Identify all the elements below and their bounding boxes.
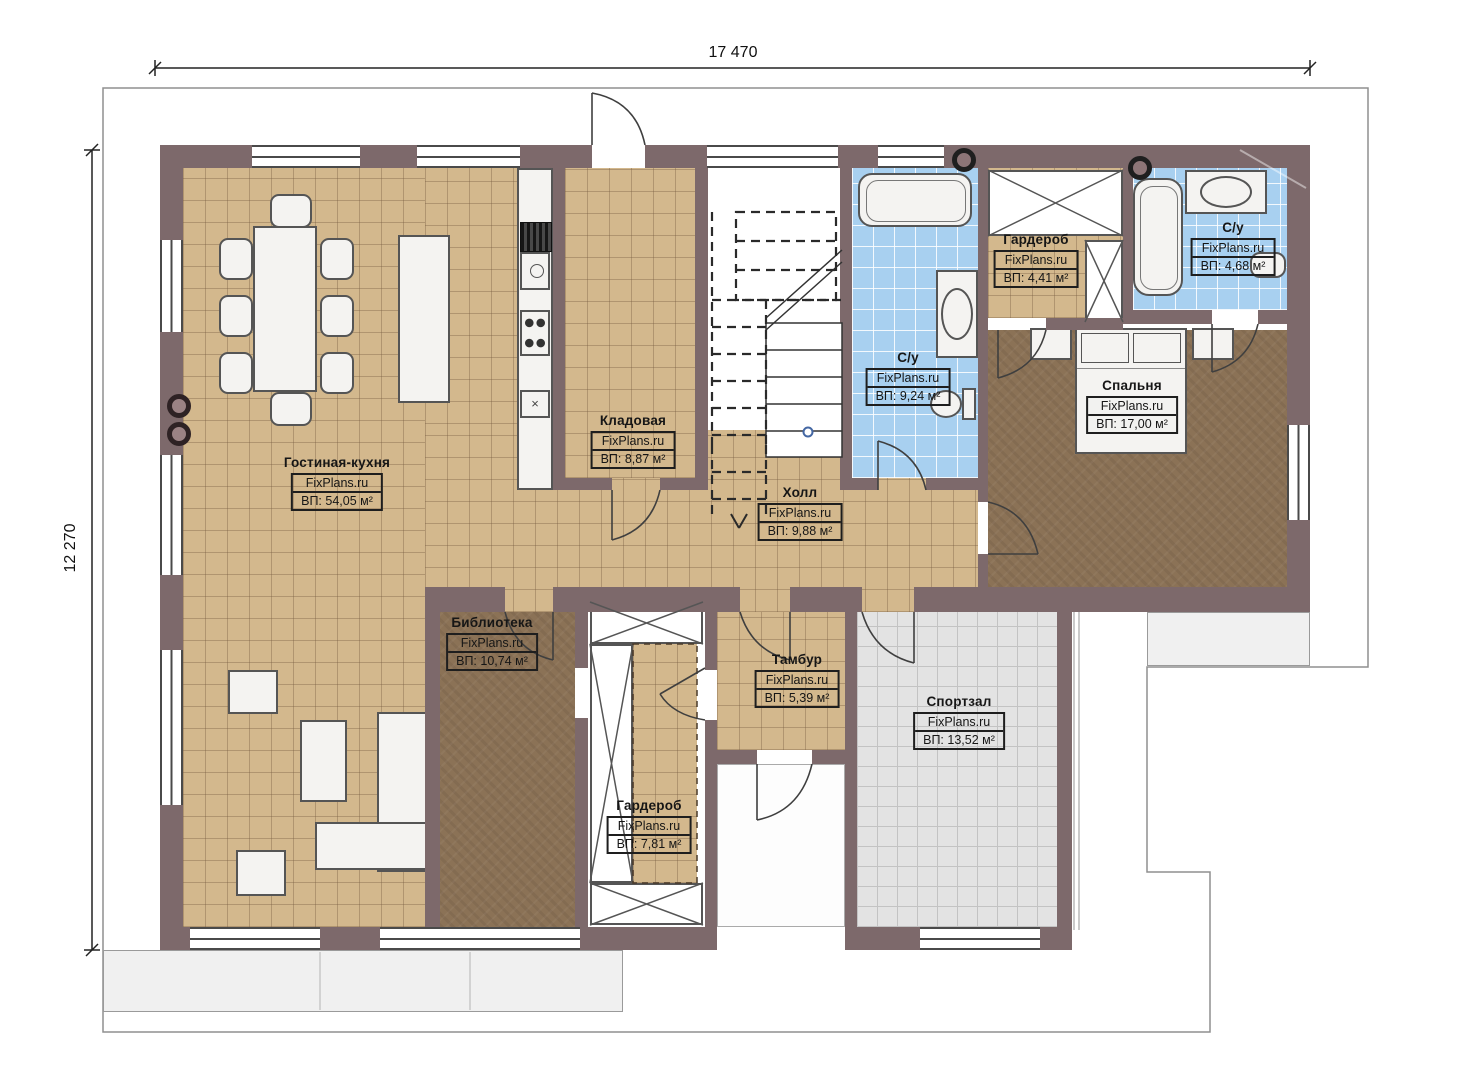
- blanket-line: [1077, 368, 1185, 369]
- wall-segment: [553, 478, 612, 490]
- room-name: Спальня: [1086, 378, 1178, 393]
- dimension-height-label: 12 270: [62, 524, 80, 573]
- terrace-bottom: [103, 950, 623, 1012]
- room-name: Гардероб: [994, 232, 1079, 247]
- watermark: FixPlans.ru: [1088, 398, 1176, 416]
- wall-segment: [812, 750, 857, 764]
- pillow: [1081, 333, 1129, 363]
- kitchen-island: [398, 235, 450, 403]
- room-name: Гостиная-кухня: [284, 455, 390, 470]
- room-label-hall: Холл FixPlans.ru ВП: 9,88 м²: [758, 485, 843, 541]
- room-area: ВП: 7,81 м²: [609, 836, 690, 852]
- wall-segment: [575, 587, 588, 668]
- wall-segment: [978, 587, 1310, 612]
- closet-icon: [1085, 240, 1123, 322]
- wall-segment: [978, 168, 988, 502]
- wall-segment: [1057, 612, 1072, 950]
- room-name: Библиотека: [446, 615, 538, 630]
- room-label-bath-small: С/у FixPlans.ru ВП: 4,68 м²: [1191, 220, 1276, 276]
- wall-segment: [360, 145, 417, 168]
- wall-segment: [695, 168, 708, 490]
- window: [1287, 425, 1310, 520]
- wall-segment: [705, 750, 757, 764]
- wall-segment: [838, 145, 878, 168]
- room-label-pantry: Кладовая FixPlans.ru ВП: 8,87 м²: [591, 413, 676, 469]
- armchair: [236, 850, 286, 896]
- wall-segment: [1046, 318, 1123, 330]
- room-name: Кладовая: [591, 413, 676, 428]
- wall-segment: [1287, 520, 1310, 587]
- room-label-wardrobe-top: Гардероб FixPlans.ru ВП: 4,41 м²: [994, 232, 1079, 288]
- window: [190, 927, 320, 950]
- room-label-gym: Спортзал FixPlans.ru ВП: 13,52 м²: [913, 694, 1005, 750]
- flue-icon: [167, 422, 191, 446]
- window: [160, 455, 183, 575]
- bathtub-inner: [866, 180, 966, 222]
- wall-segment: [1123, 310, 1212, 324]
- stove-icon: [520, 310, 550, 356]
- room-label-bath-main: С/у FixPlans.ru ВП: 9,24 м²: [866, 350, 951, 406]
- room-info-box: FixPlans.ru ВП: 4,68 м²: [1191, 238, 1276, 276]
- kitchen-sink-icon: [520, 252, 550, 290]
- wall-segment: [160, 927, 190, 950]
- room-name: Спортзал: [913, 694, 1005, 709]
- window: [160, 240, 183, 332]
- room-info-box: FixPlans.ru ВП: 54,05 м²: [291, 473, 383, 511]
- dining-chair: [270, 194, 312, 228]
- dining-chair: [320, 352, 354, 394]
- wall-segment: [1258, 310, 1310, 324]
- dining-chair: [219, 238, 253, 280]
- wall-segment: [160, 805, 183, 927]
- wall-segment: [575, 718, 588, 950]
- wall-segment: [425, 587, 440, 950]
- floor-plan: ×: [0, 0, 1473, 1080]
- washbasin-icon: [1200, 176, 1252, 208]
- dining-chair: [270, 392, 312, 426]
- watermark: FixPlans.ru: [915, 714, 1003, 732]
- pillow: [1133, 333, 1181, 363]
- armchair: [228, 670, 278, 714]
- wall-segment: [520, 145, 592, 168]
- watermark: FixPlans.ru: [593, 433, 674, 451]
- room-area: ВП: 13,52 м²: [915, 732, 1003, 748]
- room-name: С/у: [1191, 220, 1276, 235]
- washbasin-icon: [941, 288, 973, 340]
- watermark: FixPlans.ru: [996, 252, 1077, 270]
- floor-stairwell: [708, 168, 840, 430]
- watermark: FixPlans.ru: [293, 475, 381, 493]
- window: [707, 145, 838, 168]
- window: [380, 927, 580, 950]
- appliance-icon: ×: [520, 390, 550, 418]
- bathtub-inner: [1140, 186, 1178, 290]
- terrace-bedroom: [1147, 612, 1310, 666]
- room-label-vestibule: Тамбур FixPlans.ru ВП: 5,39 м²: [755, 652, 840, 708]
- wall-segment: [580, 927, 717, 950]
- dining-chair: [219, 352, 253, 394]
- flue-icon: [1128, 156, 1152, 180]
- room-info-box: FixPlans.ru ВП: 17,00 м²: [1086, 396, 1178, 434]
- room-area: ВП: 5,39 м²: [757, 690, 838, 706]
- room-label-living: Гостиная-кухня FixPlans.ru ВП: 54,05 м²: [284, 455, 390, 511]
- wall-segment: [645, 145, 707, 168]
- window: [920, 927, 1040, 950]
- wall-segment: [944, 145, 1310, 168]
- wall-segment: [1287, 168, 1310, 425]
- room-name: Тамбур: [755, 652, 840, 667]
- room-area: ВП: 4,41 м²: [996, 270, 1077, 286]
- entrance-porch: [717, 764, 845, 927]
- dining-chair: [320, 238, 354, 280]
- room-area: ВП: 17,00 м²: [1088, 416, 1176, 432]
- sofa: [315, 822, 431, 870]
- flue-icon: [952, 148, 976, 172]
- window: [878, 145, 944, 168]
- room-info-box: FixPlans.ru ВП: 5,39 м²: [755, 670, 840, 708]
- fridge-icon: [520, 222, 552, 252]
- window: [160, 650, 183, 805]
- room-label-bedroom: Спальня FixPlans.ru ВП: 17,00 м²: [1086, 378, 1178, 434]
- room-name: Холл: [758, 485, 843, 500]
- room-info-box: FixPlans.ru ВП: 7,81 м²: [607, 816, 692, 854]
- floor-gym: [857, 612, 1057, 927]
- room-area: ВП: 54,05 м²: [293, 493, 381, 509]
- nightstand: [1030, 328, 1072, 360]
- room-info-box: FixPlans.ru ВП: 13,52 м²: [913, 712, 1005, 750]
- room-area: ВП: 8,87 м²: [593, 451, 674, 467]
- toilet-tank-icon: [962, 388, 976, 420]
- room-info-box: FixPlans.ru ВП: 9,24 м²: [866, 368, 951, 406]
- watermark: FixPlans.ru: [760, 505, 841, 523]
- wall-segment: [160, 145, 252, 168]
- dining-chair: [320, 295, 354, 337]
- wall-segment: [553, 168, 565, 490]
- room-info-box: FixPlans.ru ВП: 4,41 м²: [994, 250, 1079, 288]
- wall-segment: [914, 587, 978, 612]
- watermark: FixPlans.ru: [1193, 240, 1274, 258]
- nightstand: [1192, 328, 1234, 360]
- wall-segment: [705, 587, 717, 670]
- watermark: FixPlans.ru: [609, 818, 690, 836]
- watermark: FixPlans.ru: [448, 635, 536, 653]
- closet-icon: [590, 883, 703, 925]
- coffee-table: [300, 720, 347, 802]
- room-label-library: Библиотека FixPlans.ru ВП: 10,74 м²: [446, 615, 538, 671]
- watermark: FixPlans.ru: [868, 370, 949, 388]
- wall-segment: [160, 575, 183, 650]
- room-area: ВП: 9,24 м²: [868, 388, 949, 404]
- room-area: ВП: 9,88 м²: [760, 523, 841, 539]
- closet-icon: [988, 170, 1123, 236]
- wall-segment: [1123, 168, 1133, 318]
- wall-segment: [845, 587, 857, 950]
- dimension-width-label: 17 470: [709, 44, 758, 62]
- room-area: ВП: 4,68 м²: [1193, 258, 1274, 274]
- wall-segment: [926, 478, 978, 490]
- window: [252, 145, 360, 168]
- room-area: ВП: 10,74 м²: [448, 653, 536, 669]
- dining-chair: [219, 295, 253, 337]
- room-name: Гардероб: [607, 798, 692, 813]
- watermark: FixPlans.ru: [757, 672, 838, 690]
- wall-segment: [840, 478, 878, 490]
- room-info-box: FixPlans.ru ВП: 10,74 м²: [446, 633, 538, 671]
- room-info-box: FixPlans.ru ВП: 9,88 м²: [758, 503, 843, 541]
- wall-segment: [660, 478, 708, 490]
- wall-segment: [840, 168, 852, 490]
- window: [417, 145, 520, 168]
- wall-segment: [160, 168, 183, 240]
- wall-segment: [320, 927, 380, 950]
- flue-icon: [167, 394, 191, 418]
- room-name: С/у: [866, 350, 951, 365]
- room-info-box: FixPlans.ru ВП: 8,87 м²: [591, 431, 676, 469]
- dining-table: [253, 226, 317, 392]
- room-label-wardrobe-bottom: Гардероб FixPlans.ru ВП: 7,81 м²: [607, 798, 692, 854]
